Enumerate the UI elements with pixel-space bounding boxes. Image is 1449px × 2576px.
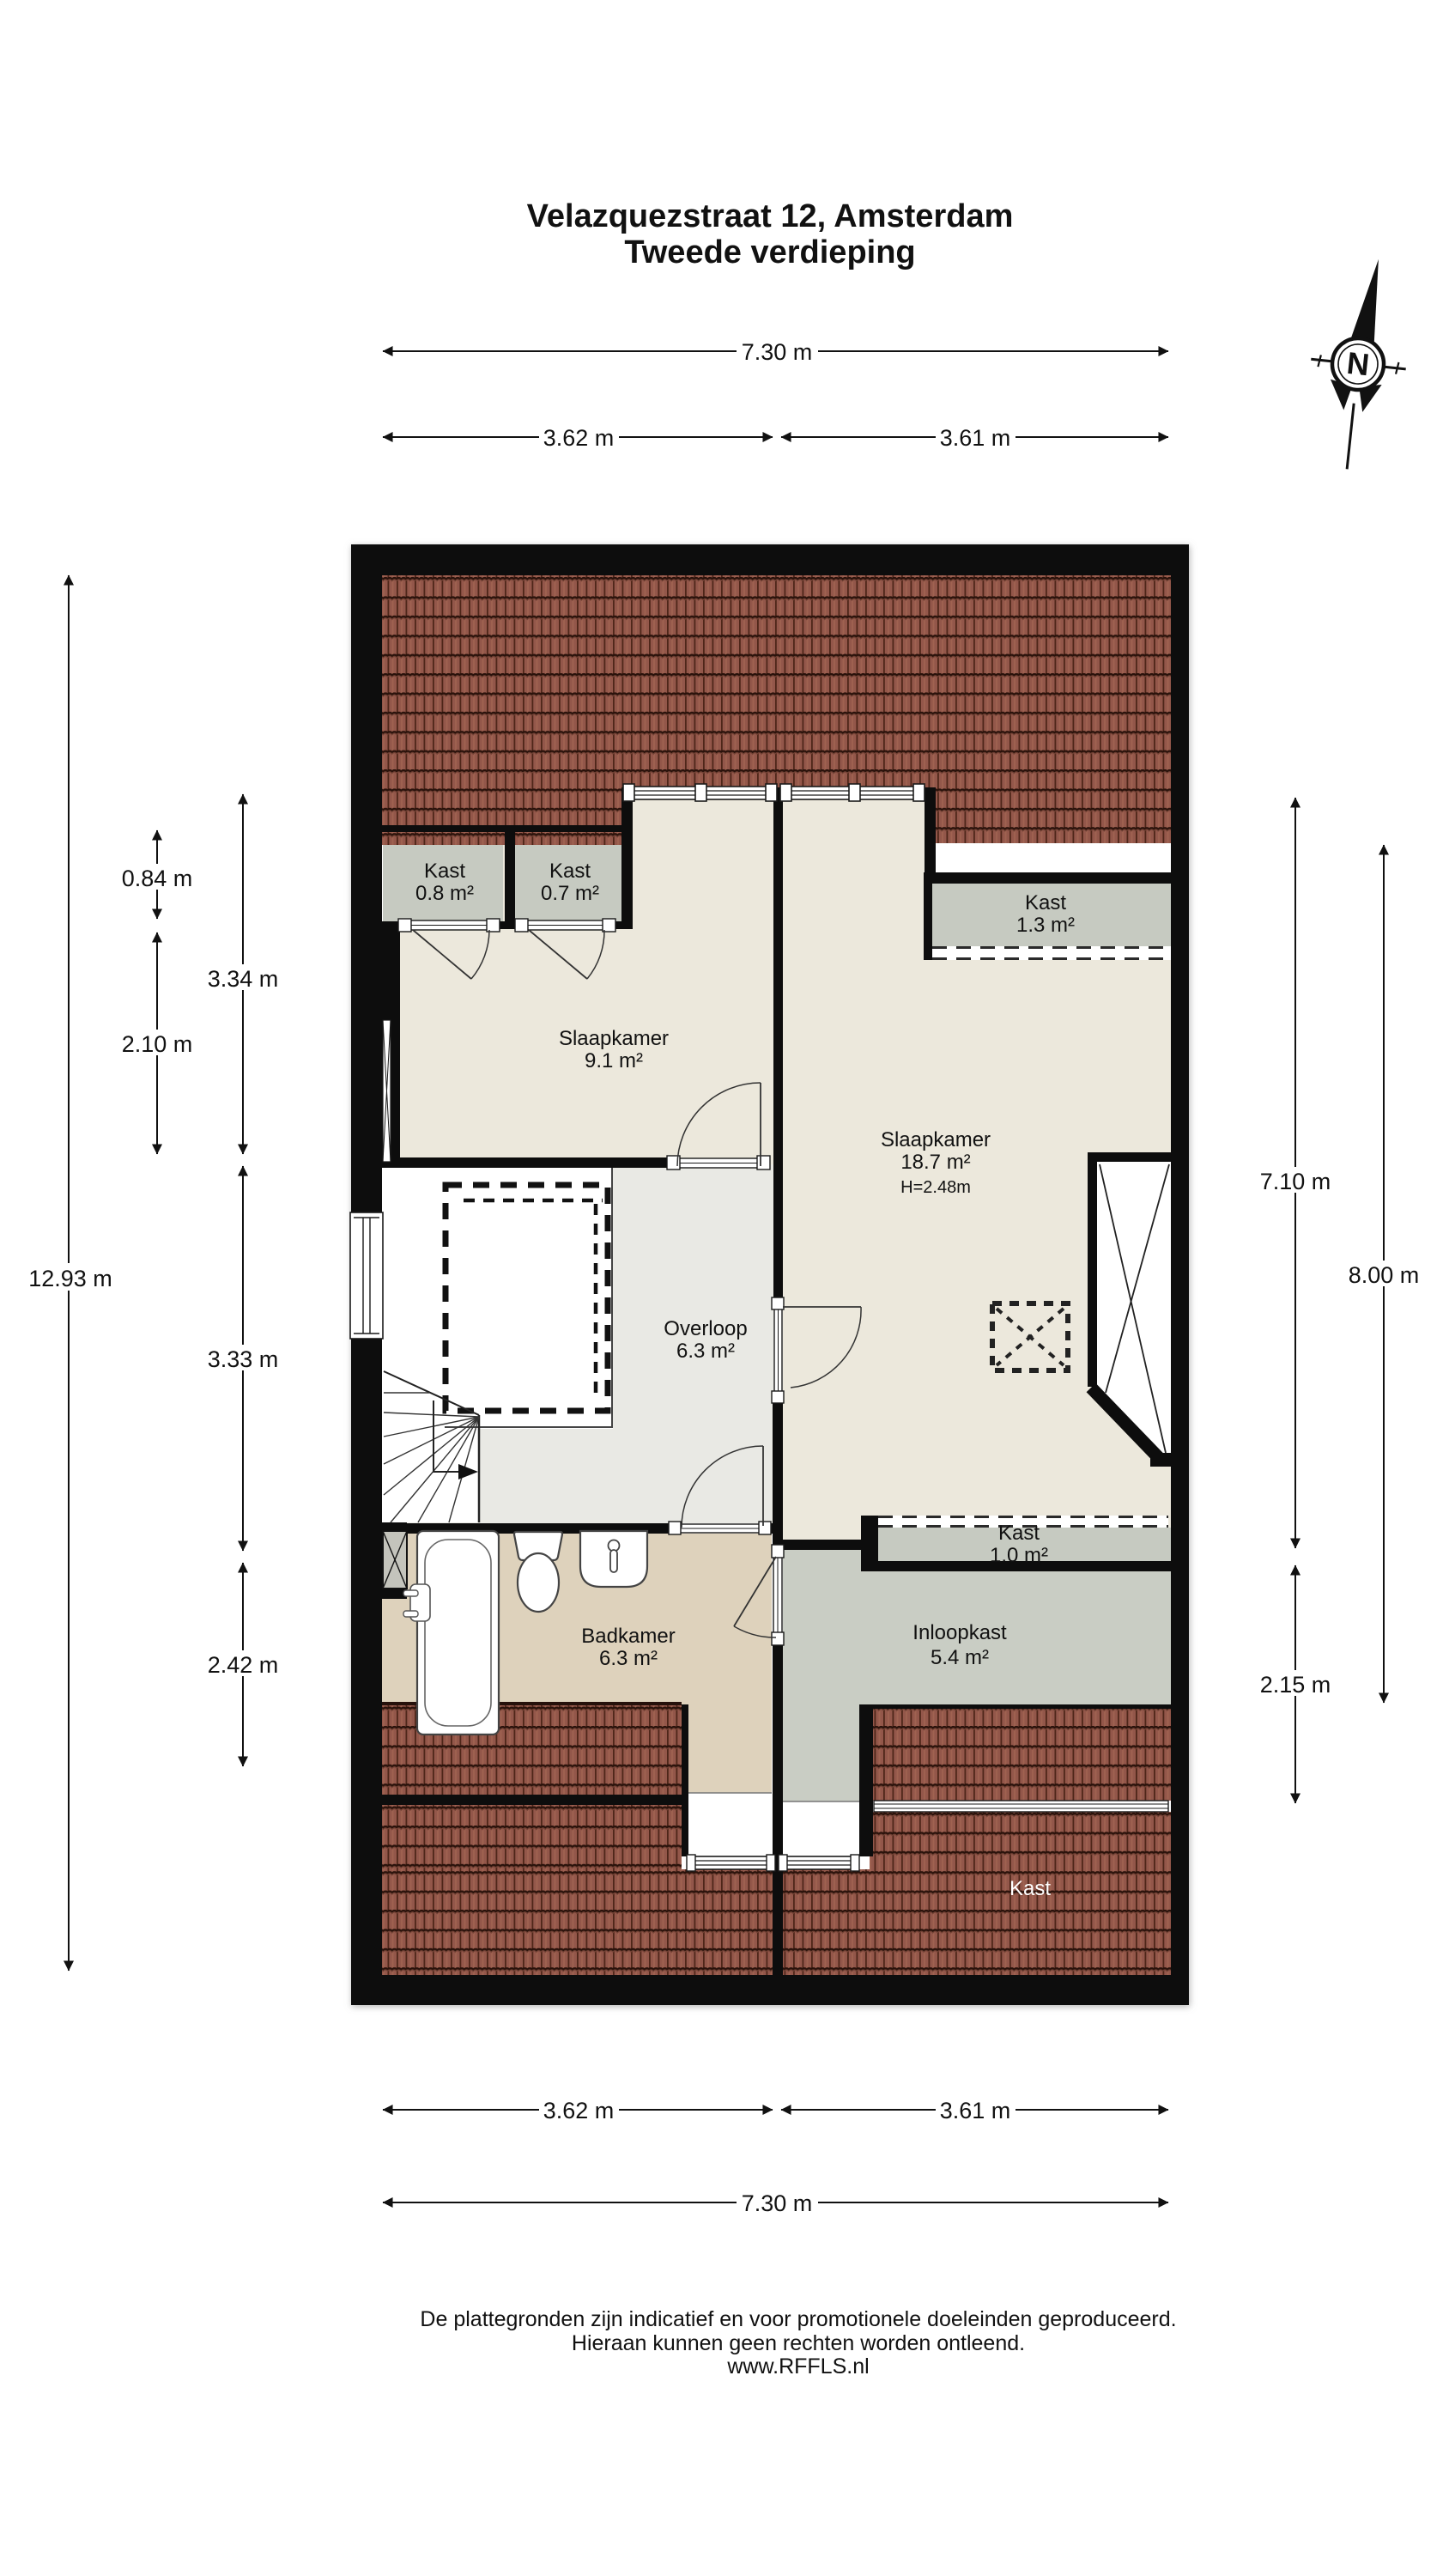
svg-text:7.10 m: 7.10 m <box>1260 1169 1331 1194</box>
svg-text:Badkamer: Badkamer <box>581 1625 675 1648</box>
svg-text:2.10 m: 2.10 m <box>122 1031 193 1057</box>
svg-text:6.3 m²: 6.3 m² <box>676 1340 735 1363</box>
svg-text:0.7 m²: 0.7 m² <box>541 882 599 905</box>
svg-text:8.00 m: 8.00 m <box>1349 1262 1420 1288</box>
svg-text:3.61 m: 3.61 m <box>940 2098 1011 2123</box>
svg-text:0.8 m²: 0.8 m² <box>415 882 474 905</box>
svg-text:www.RFFLS.nl: www.RFFLS.nl <box>726 2354 869 2379</box>
svg-text:Slaapkamer: Slaapkamer <box>559 1027 669 1050</box>
svg-text:2.42 m: 2.42 m <box>208 1652 279 1678</box>
svg-text:9.1 m²: 9.1 m² <box>585 1049 643 1072</box>
svg-text:N: N <box>1345 345 1371 382</box>
svg-text:Slaapkamer: Slaapkamer <box>881 1128 991 1151</box>
svg-text:Kast: Kast <box>424 860 465 883</box>
svg-text:De plattegronden zijn indicati: De plattegronden zijn indicatief en voor… <box>420 2307 1176 2331</box>
svg-text:Inloopkast: Inloopkast <box>912 1621 1007 1644</box>
svg-text:Kast: Kast <box>1025 891 1066 914</box>
svg-text:18.7 m²: 18.7 m² <box>900 1151 970 1174</box>
svg-text:2.15 m: 2.15 m <box>1260 1672 1331 1698</box>
svg-text:0.84 m: 0.84 m <box>122 866 193 891</box>
svg-text:Kast: Kast <box>998 1522 1040 1545</box>
svg-text:Tweede verdieping: Tweede verdieping <box>624 234 915 270</box>
svg-text:3.33 m: 3.33 m <box>208 1346 279 1372</box>
svg-text:5.4 m²: 5.4 m² <box>931 1646 989 1669</box>
svg-text:3.62 m: 3.62 m <box>543 425 615 451</box>
svg-text:6.3 m²: 6.3 m² <box>599 1647 658 1670</box>
svg-text:1.3 m²: 1.3 m² <box>1016 914 1075 937</box>
svg-text:Kast: Kast <box>549 860 591 883</box>
svg-text:3.62 m: 3.62 m <box>543 2098 615 2123</box>
svg-text:3.61 m: 3.61 m <box>940 425 1011 451</box>
svg-text:Kast: Kast <box>1009 1877 1051 1900</box>
svg-text:Overloop: Overloop <box>664 1317 747 1340</box>
svg-text:Hieraan kunnen geen rechten wo: Hieraan kunnen geen rechten worden ontle… <box>572 2331 1025 2355</box>
svg-text:7.30 m: 7.30 m <box>742 2190 813 2216</box>
svg-text:3.34 m: 3.34 m <box>208 966 279 992</box>
svg-text:1.0 m²: 1.0 m² <box>990 1544 1048 1567</box>
svg-text:H=2.48m: H=2.48m <box>900 1178 971 1197</box>
svg-text:7.30 m: 7.30 m <box>742 339 813 365</box>
svg-text:Velazquezstraat 12, Amsterdam: Velazquezstraat 12, Amsterdam <box>527 198 1014 234</box>
svg-text:12.93 m: 12.93 m <box>28 1266 112 1291</box>
